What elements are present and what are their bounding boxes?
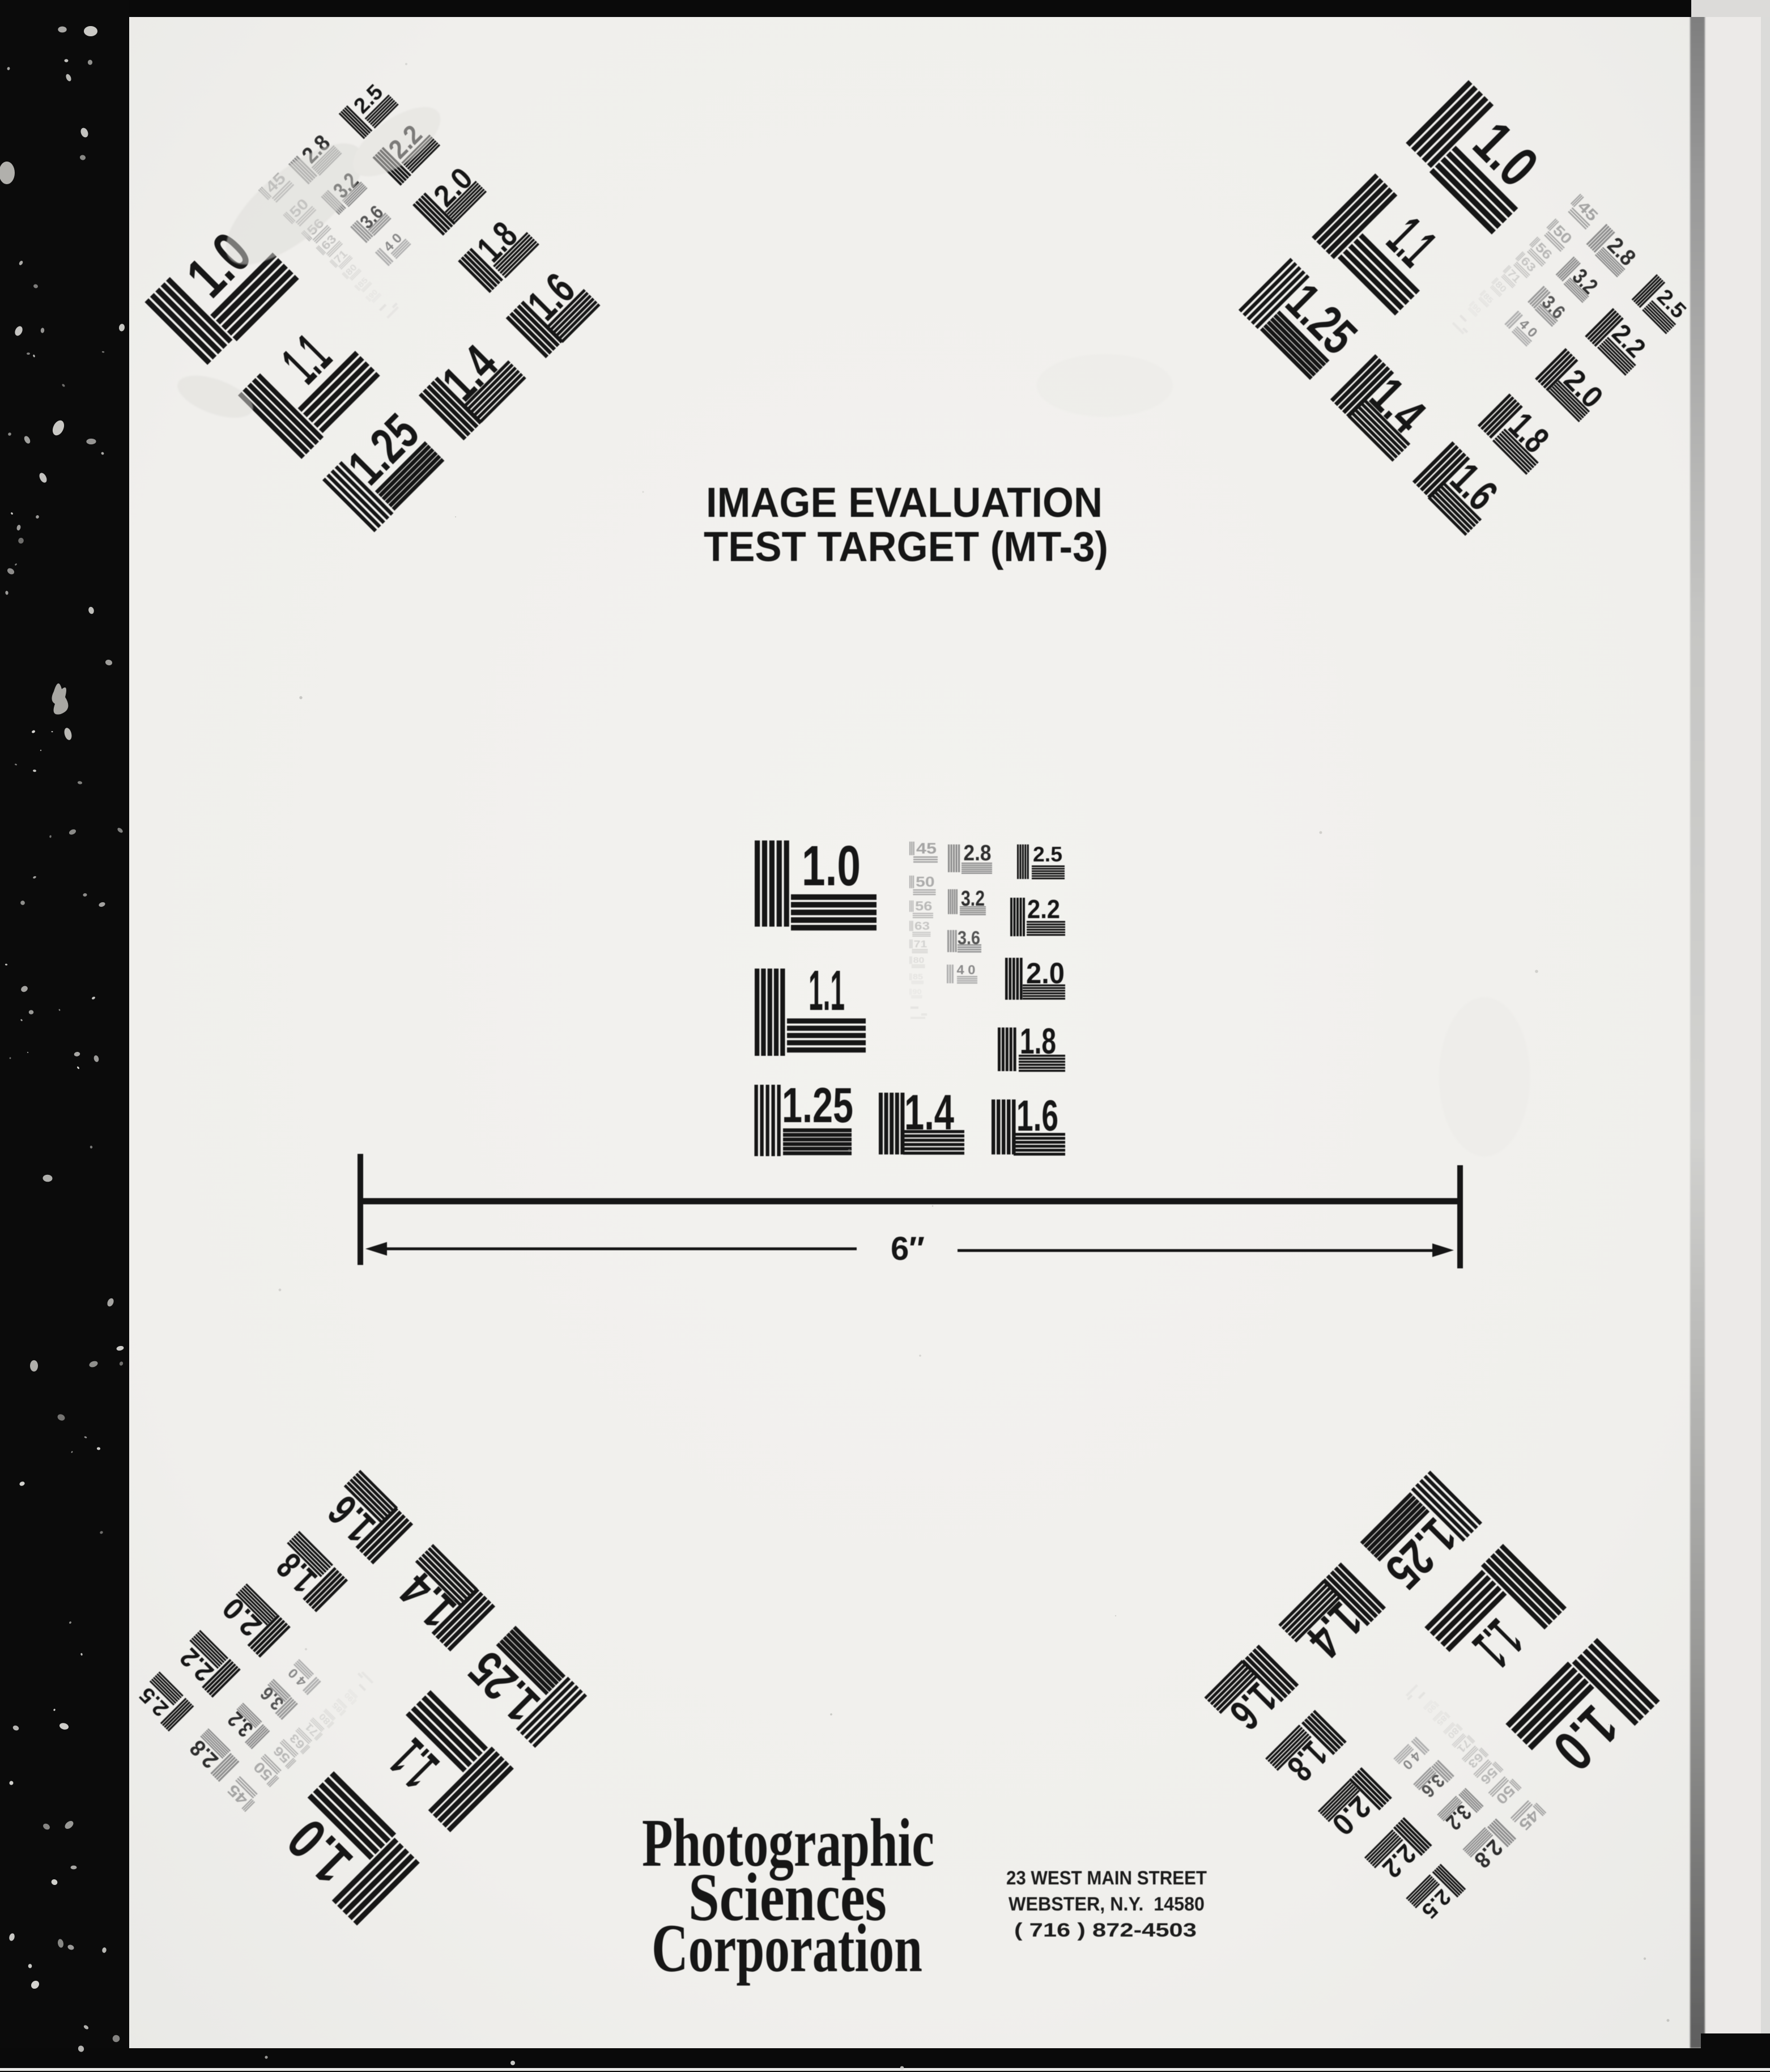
svg-text:Corporation: Corporation	[652, 1910, 922, 1986]
svg-text:23 WEST MAIN STREET: 23 WEST MAIN STREET	[1006, 1867, 1207, 1889]
svg-text:TEST TARGET (MT-3): TEST TARGET (MT-3)	[704, 523, 1108, 570]
svg-text:( 716 ) 872-4503: ( 716 ) 872-4503	[1014, 1920, 1197, 1941]
svg-text:IMAGE EVALUATION: IMAGE EVALUATION	[706, 479, 1103, 526]
svg-text:6″: 6″	[891, 1230, 925, 1267]
svg-text:WEBSTER, N.Y. 14580: WEBSTER, N.Y. 14580	[1009, 1893, 1205, 1915]
